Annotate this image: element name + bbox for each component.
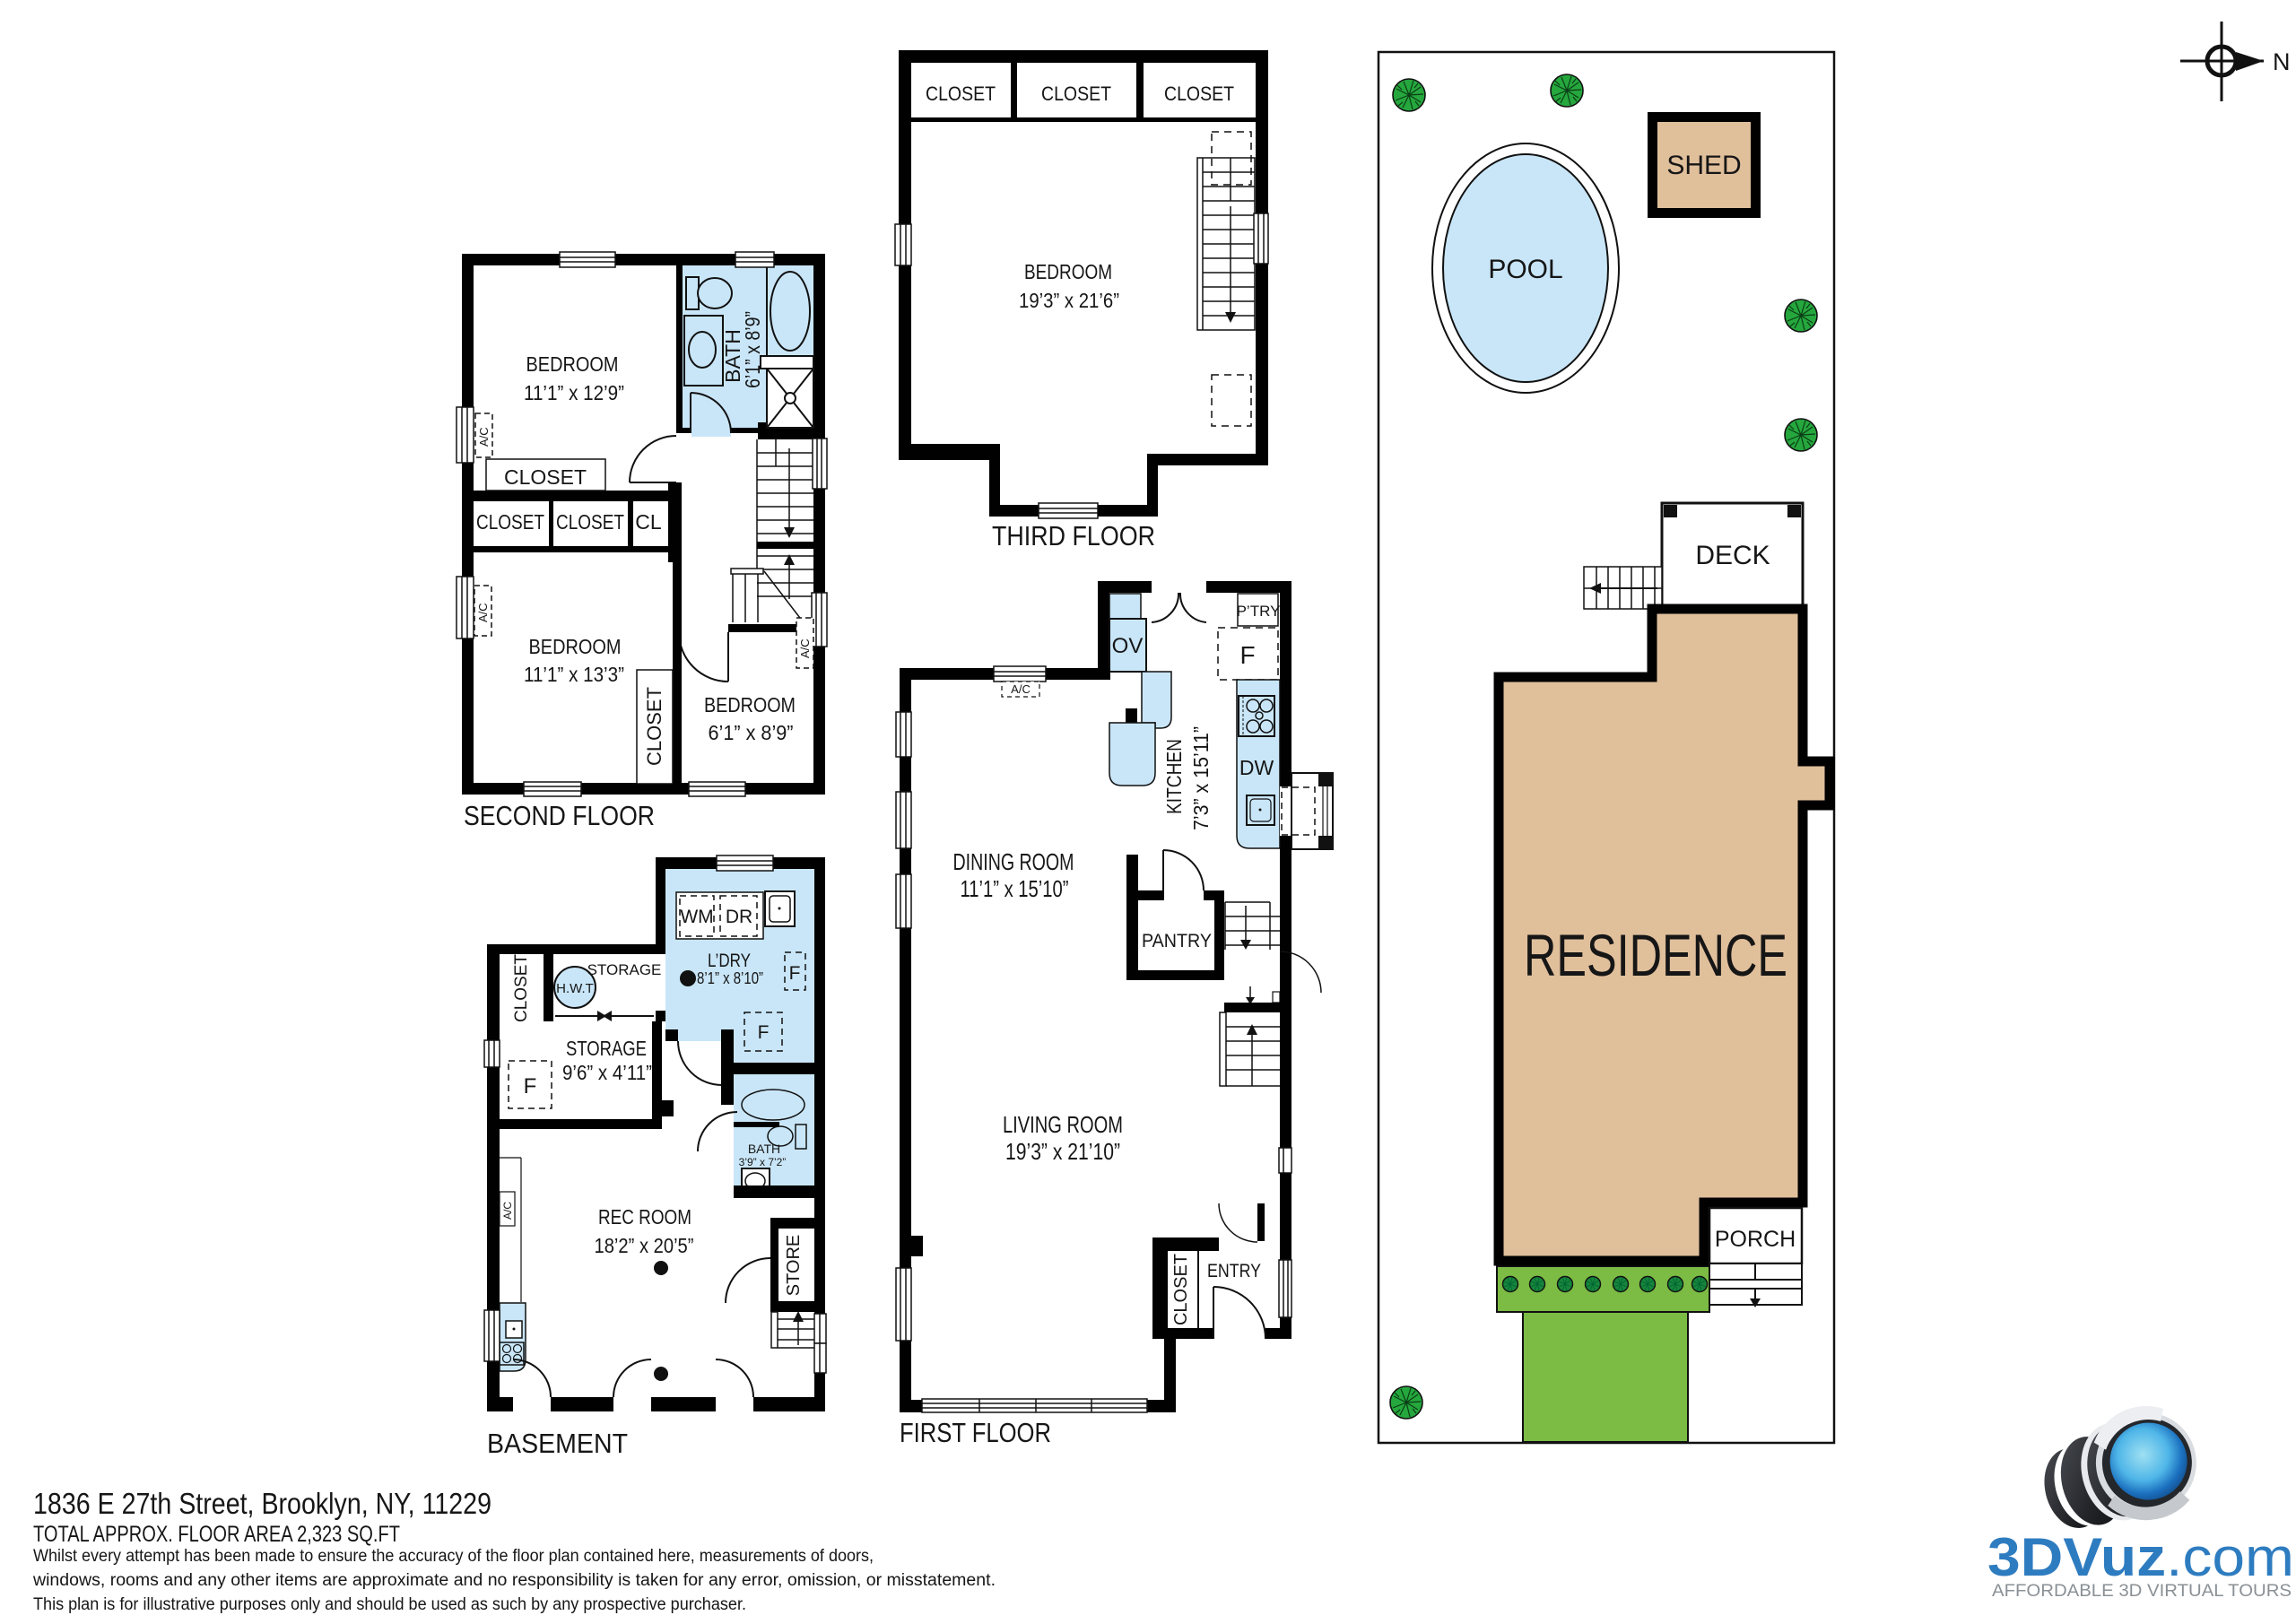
svg-text:L’DRY: L’DRY: [708, 951, 751, 971]
svg-text:CLOSET: CLOSET: [556, 510, 624, 534]
svg-text:DINING ROOM: DINING ROOM: [953, 848, 1074, 875]
svg-text:WM: WM: [680, 907, 713, 927]
svg-text:A/C: A/C: [501, 1202, 514, 1220]
svg-text:CLOSET: CLOSET: [512, 954, 531, 1022]
svg-text:A/C: A/C: [798, 638, 812, 658]
svg-text:DR: DR: [726, 907, 752, 927]
svg-text:CLOSET: CLOSET: [1171, 1254, 1191, 1325]
svg-text:F: F: [1239, 641, 1255, 669]
svg-text:18’2” x 20’5”: 18’2” x 20’5”: [595, 1234, 694, 1257]
svg-text:CL: CL: [635, 510, 662, 534]
svg-text:CLOSET: CLOSET: [1164, 83, 1234, 105]
svg-text:11’1” x 12’9”: 11’1” x 12’9”: [524, 381, 624, 404]
svg-text:A/C: A/C: [1011, 682, 1031, 696]
svg-text:BATH: BATH: [748, 1142, 780, 1156]
svg-text:F: F: [789, 963, 801, 984]
svg-text:SHED: SHED: [1666, 151, 1741, 180]
svg-text:THIRD FLOOR: THIRD FLOOR: [992, 520, 1155, 551]
svg-text:6’1” x 8’9”: 6’1” x 8’9”: [741, 311, 764, 388]
svg-text:KITCHEN: KITCHEN: [1162, 739, 1186, 814]
svg-text:19’3” x 21’6”: 19’3” x 21’6”: [1019, 289, 1119, 312]
svg-text:ENTRY: ENTRY: [1207, 1261, 1261, 1281]
svg-text:FIRST FLOOR: FIRST FLOOR: [900, 1417, 1051, 1448]
svg-text:BEDROOM: BEDROOM: [704, 693, 796, 716]
svg-text:CLOSET: CLOSET: [476, 510, 544, 534]
svg-text:F: F: [524, 1074, 537, 1099]
svg-text:CLOSET: CLOSET: [926, 83, 996, 105]
svg-text:STORAGE: STORAGE: [566, 1037, 647, 1060]
svg-text:TOTAL APPROX. FLOOR AREA 2,323: TOTAL APPROX. FLOOR AREA 2,323 SQ.FT: [33, 1522, 400, 1547]
svg-text:3DVuz.com: 3DVuz.com: [1987, 1527, 2294, 1587]
svg-text:LIVING ROOM: LIVING ROOM: [1003, 1111, 1123, 1138]
svg-text:3’9” x 7’2”: 3’9” x 7’2”: [739, 1156, 787, 1168]
svg-text:SECOND FLOOR: SECOND FLOOR: [464, 800, 655, 831]
svg-text:RESIDENCE: RESIDENCE: [1524, 922, 1787, 988]
svg-text:REC ROOM: REC ROOM: [598, 1205, 691, 1229]
svg-text:Whilst every attempt has been: Whilst every attempt has been made to en…: [33, 1547, 874, 1566]
svg-text:BEDROOM: BEDROOM: [529, 635, 622, 658]
svg-text:6’1” x 8’9”: 6’1” x 8’9”: [709, 721, 794, 744]
svg-text:A/C: A/C: [477, 427, 491, 447]
svg-text:CLOSET: CLOSET: [504, 465, 587, 489]
svg-text:STORE: STORE: [784, 1235, 804, 1297]
svg-text:BASEMENT: BASEMENT: [487, 1428, 628, 1459]
svg-text:POOL: POOL: [1488, 255, 1562, 284]
svg-text:CLOSET: CLOSET: [1041, 83, 1111, 105]
svg-text:PANTRY: PANTRY: [1142, 931, 1212, 951]
svg-text:8’1” x 8’10”: 8’1” x 8’10”: [697, 969, 763, 987]
svg-text:H.W.T: H.W.T: [556, 981, 594, 996]
svg-text:This plan is for illustrative: This plan is for illustrative purposes o…: [33, 1595, 746, 1614]
svg-text:19’3” x 21’10”: 19’3” x 21’10”: [1005, 1138, 1120, 1165]
svg-text:windows, rooms and any other i: windows, rooms and any other items are a…: [32, 1571, 996, 1590]
svg-text:7’3” x 15’11”: 7’3” x 15’11”: [1189, 726, 1213, 830]
svg-text:9’6” x 4’11”: 9’6” x 4’11”: [562, 1061, 652, 1084]
svg-text:PORCH: PORCH: [1715, 1227, 1796, 1252]
svg-text:1836 E 27th Street, Brooklyn,: 1836 E 27th Street, Brooklyn, NY, 11229: [33, 1487, 491, 1520]
svg-text:OV: OV: [1112, 634, 1144, 658]
svg-text:BEDROOM: BEDROOM: [526, 352, 619, 376]
svg-text:A/C: A/C: [476, 603, 490, 622]
svg-text:AFFORDABLE 3D VIRTUAL TOURS: AFFORDABLE 3D VIRTUAL TOURS: [1992, 1582, 2292, 1601]
svg-text:N: N: [2273, 48, 2291, 75]
svg-text:DW: DW: [1239, 756, 1274, 779]
svg-text:DECK: DECK: [1695, 541, 1770, 570]
svg-text:F: F: [758, 1022, 770, 1043]
svg-text:CLOSET: CLOSET: [643, 687, 665, 766]
svg-text:11’1” x 15’10”: 11’1” x 15’10”: [961, 875, 1069, 902]
svg-text:BEDROOM: BEDROOM: [1024, 260, 1112, 283]
svg-text:P’TRY: P’TRY: [1237, 603, 1281, 620]
svg-text:11’1” x 13’3”: 11’1” x 13’3”: [524, 663, 624, 686]
svg-text:STORAGE: STORAGE: [587, 961, 662, 978]
